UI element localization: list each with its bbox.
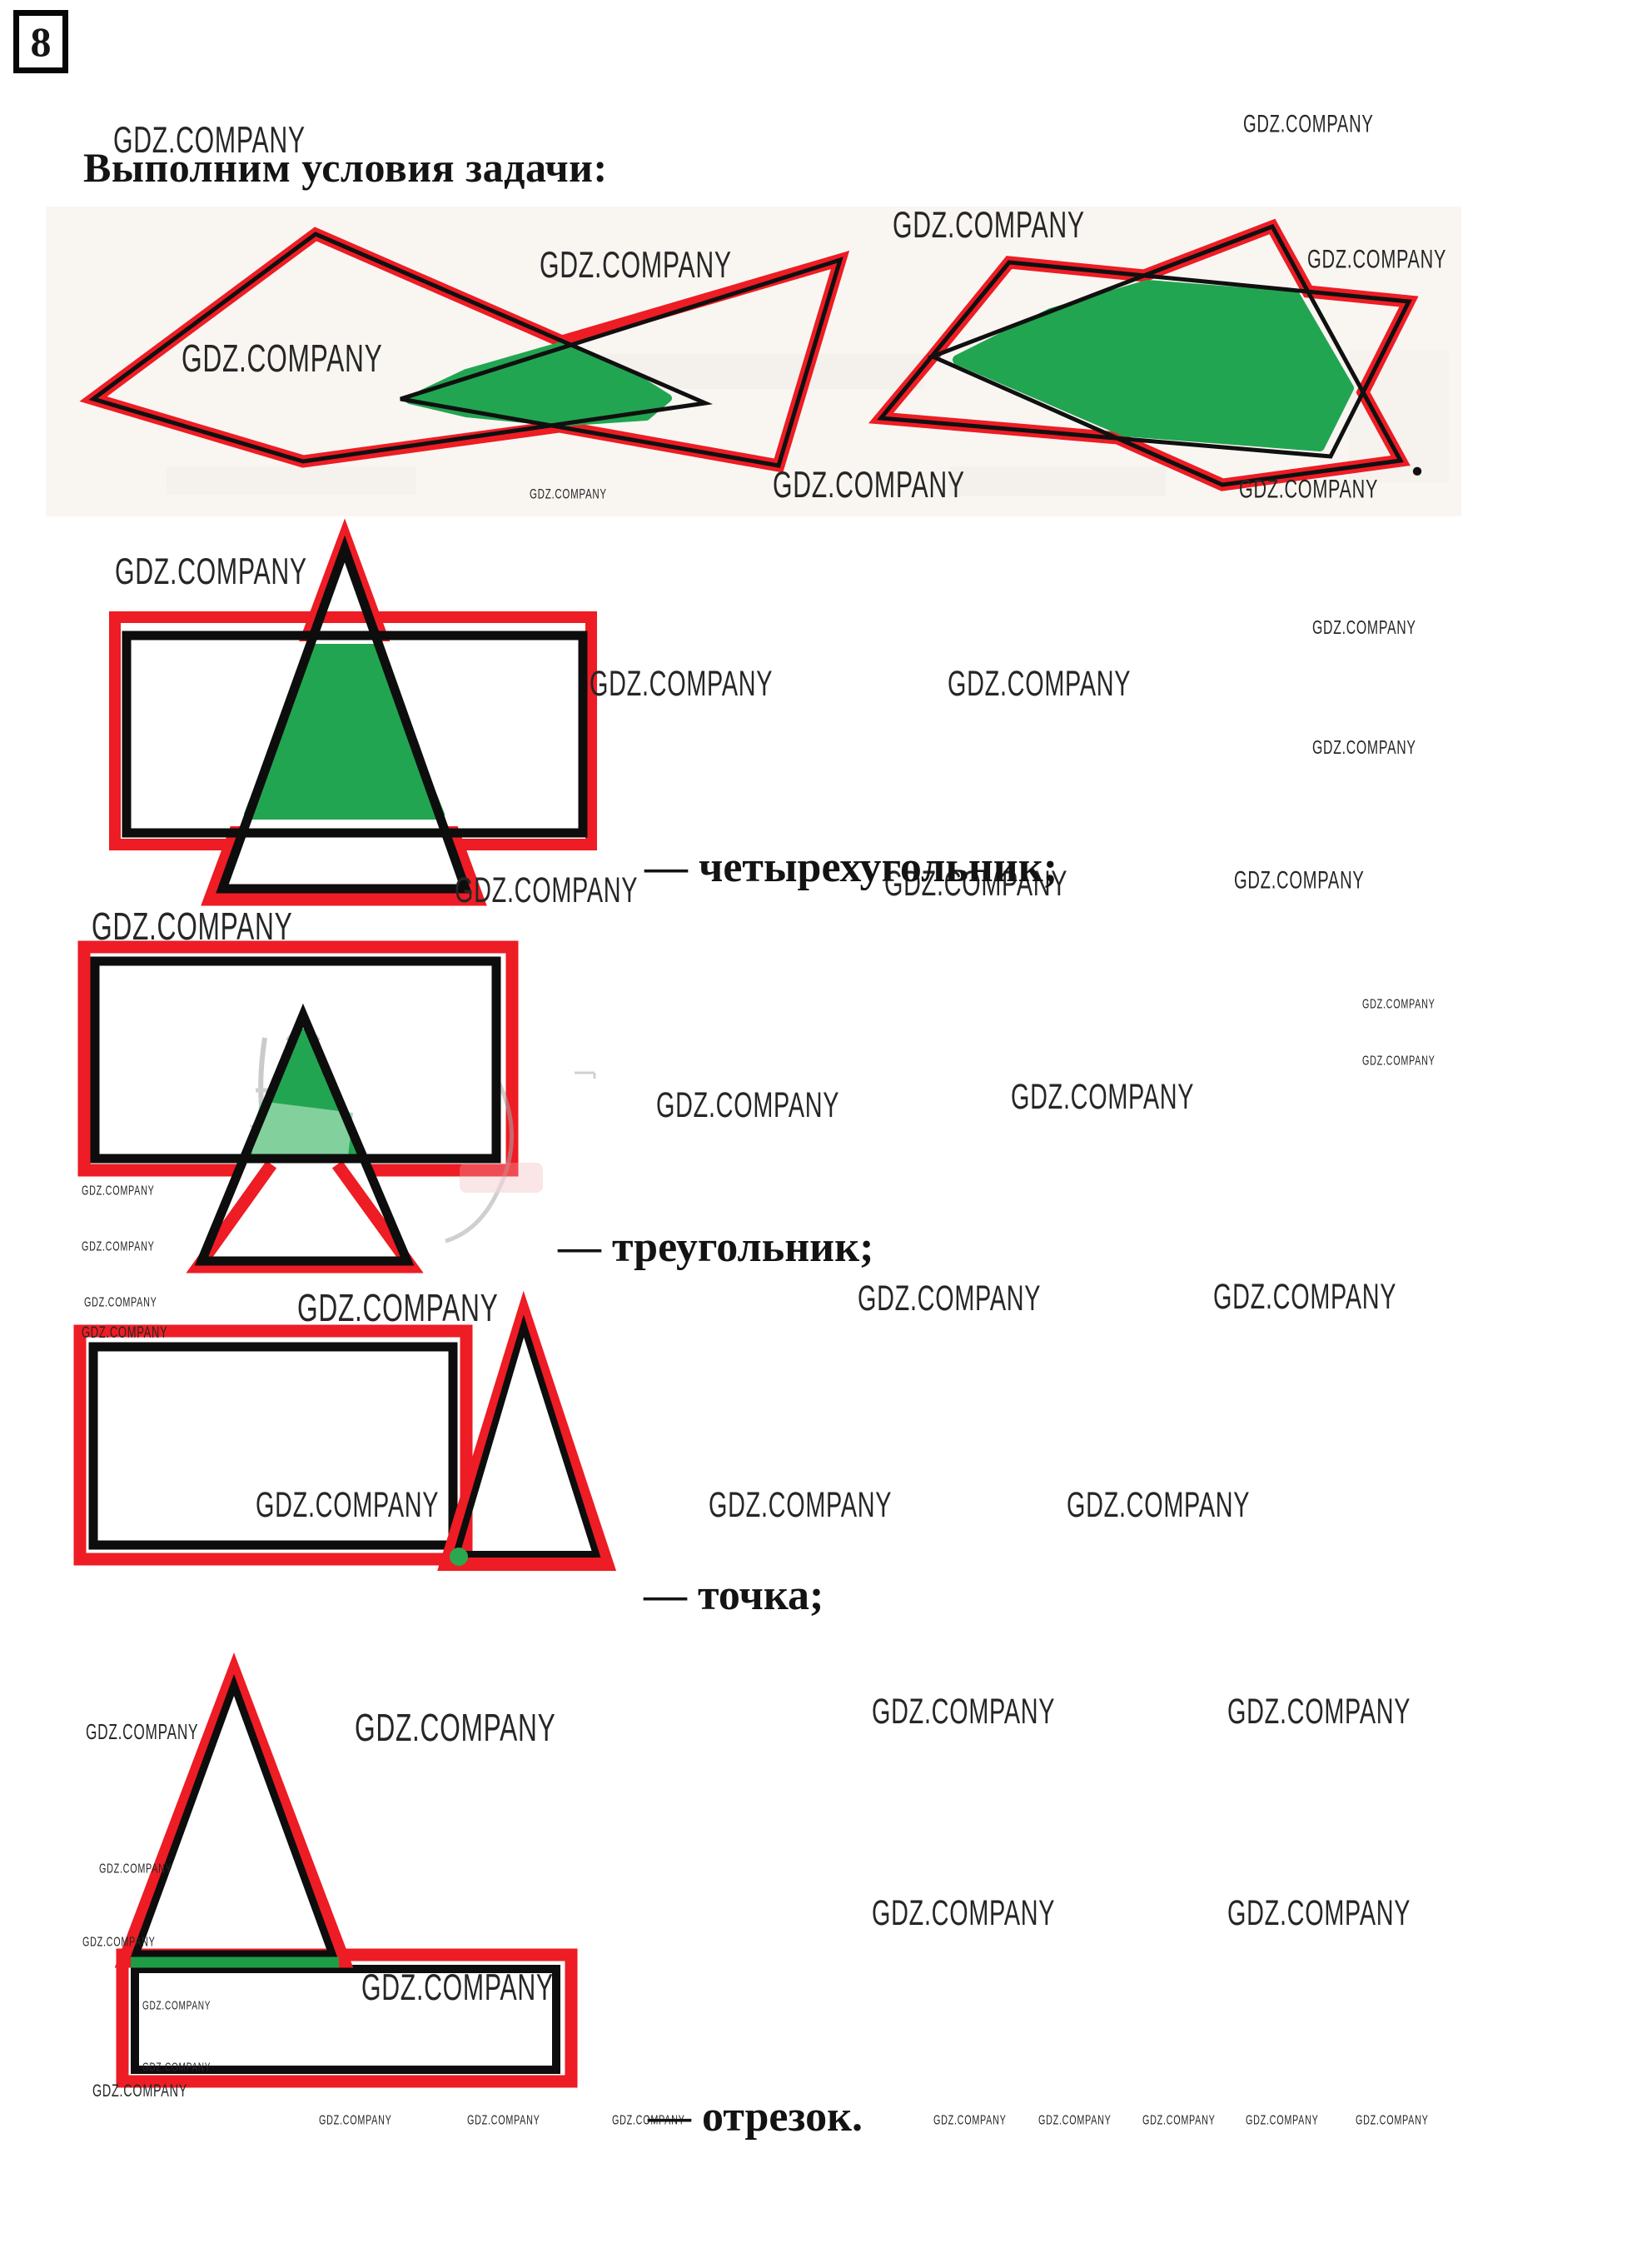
solution-page: 8 Выполним условия задачи: [0, 0, 1652, 2248]
white-gap [224, 830, 464, 885]
figure-intersection-quadrilateral [115, 536, 591, 900]
caption-segment: — отрезок. [648, 2092, 863, 2141]
sentence-period: . [1411, 426, 1424, 488]
black-rectangle [93, 1347, 453, 1545]
figures-canvas [0, 0, 1652, 2248]
red-rectangle-outline [122, 1955, 571, 2081]
green-point [450, 1548, 468, 1566]
figure-intersection-triangle [84, 947, 595, 1267]
black-triangle [136, 1685, 332, 1954]
caption-triangle: — треугольник; [558, 1223, 873, 1272]
red-triangle-outline [125, 1672, 343, 1961]
caption-quadrilateral: — четырехугольник; [644, 843, 1057, 892]
figure-intersection-point [80, 1313, 607, 1566]
red-rectangle-outline [80, 1331, 466, 1559]
black-triangle [456, 1326, 596, 1554]
caption-point: — точка; [644, 1571, 824, 1620]
figure-intersection-segment [122, 1672, 571, 2081]
black-rectangle [135, 1969, 556, 2070]
